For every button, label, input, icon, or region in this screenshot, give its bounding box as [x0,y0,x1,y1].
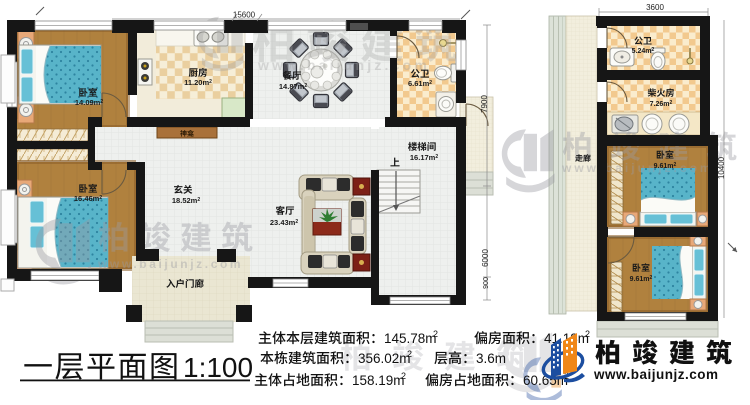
svg-text:145.78m: 145.78m [384,331,437,346]
svg-text:www.baijunjz.com: www.baijunjz.com [593,367,719,382]
svg-text:3600: 3600 [646,3,664,12]
svg-text:14.09m2: 14.09m2 [75,98,103,107]
svg-text:7.26m2: 7.26m2 [650,100,673,108]
svg-text:2: 2 [433,329,438,339]
svg-text:2: 2 [585,329,590,339]
svg-text:1:100: 1:100 [183,352,253,383]
svg-text:6.61m2: 6.61m2 [408,79,432,88]
svg-text:158.19m: 158.19m [352,373,405,388]
svg-text:11.20m2: 11.20m2 [184,78,212,87]
svg-text:www.baijunjz.com: www.baijunjz.com [257,57,430,73]
svg-text:5.24m2: 5.24m2 [632,47,655,55]
svg-text:7900: 7900 [480,95,489,113]
svg-text:16.46m2: 16.46m2 [74,194,102,203]
svg-text:16.17m2: 16.17m2 [410,153,438,162]
svg-text:2: 2 [401,371,406,381]
svg-text:900: 900 [483,277,490,289]
svg-text:18.52m2: 18.52m2 [172,196,200,205]
svg-text:14.87m2: 14.87m2 [279,82,307,91]
svg-text:356.02m: 356.02m [358,351,411,366]
svg-text:15600: 15600 [233,11,256,20]
svg-text:6000: 6000 [481,249,490,267]
svg-text:9.61m2: 9.61m2 [630,275,653,283]
svg-text:23.43m2: 23.43m2 [270,218,298,227]
svg-text:3.6m: 3.6m [476,351,506,366]
svg-text:9.61m2: 9.61m2 [654,162,677,170]
svg-text:www.baijunjz.com: www.baijunjz.com [561,161,714,175]
svg-text:10400: 10400 [717,156,726,179]
svg-text:2: 2 [407,349,412,359]
